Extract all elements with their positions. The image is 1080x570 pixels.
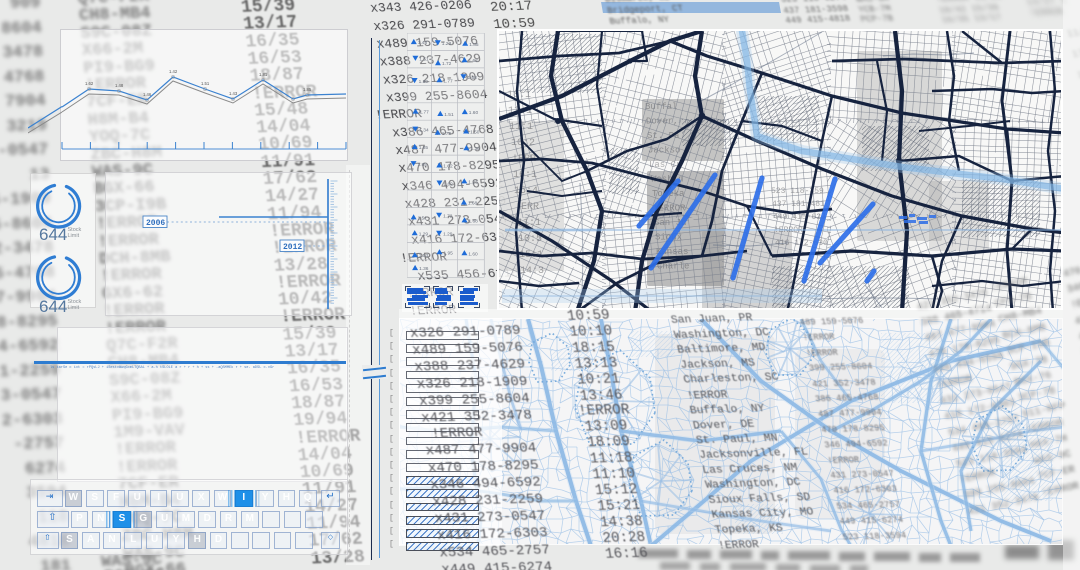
svg-text:1.46: 1.46 [143, 92, 152, 97]
svg-text:1.85: 1.85 [469, 42, 479, 48]
svg-text:1.85: 1.85 [303, 87, 312, 92]
svg-text:1.23: 1.23 [468, 179, 478, 185]
svg-text:1.36: 1.36 [419, 266, 429, 272]
svg-text:1.72: 1.72 [442, 61, 452, 67]
svg-text:Jackso: Jackso [648, 146, 680, 156]
svg-text:1.43: 1.43 [229, 91, 238, 96]
svg-text:1.81: 1.81 [259, 72, 268, 77]
svg-text:1.95: 1.95 [443, 250, 453, 256]
svg-text:1.34: 1.34 [419, 127, 429, 133]
svg-text:2006: 2006 [146, 219, 165, 228]
svg-text:1.29: 1.29 [443, 232, 453, 238]
svg-text:1.51: 1.51 [419, 57, 429, 63]
svg-text:1.68: 1.68 [467, 201, 477, 207]
svg-text:1.85: 1.85 [418, 145, 428, 151]
svg-text:1.51: 1.51 [201, 81, 210, 86]
svg-text:1.23: 1.23 [441, 41, 451, 47]
svg-text:2012: 2012 [283, 243, 302, 252]
svg-text:1.29: 1.29 [418, 231, 428, 237]
svg-text:1.62: 1.62 [85, 81, 94, 86]
svg-text:1.42: 1.42 [169, 69, 178, 74]
svg-text:1.68: 1.68 [467, 75, 477, 81]
svg-text:1.77: 1.77 [443, 78, 453, 84]
svg-text:1.62: 1.62 [443, 164, 453, 170]
svg-text:1.80: 1.80 [418, 79, 428, 85]
svg-text:1.68: 1.68 [468, 218, 478, 224]
svg-text:1.48: 1.48 [115, 83, 124, 88]
svg-text:1.77: 1.77 [419, 110, 429, 116]
svg-text:1.72: 1.72 [443, 214, 453, 220]
svg-text:1.60: 1.60 [468, 251, 478, 257]
svg-text:1.51: 1.51 [417, 215, 427, 221]
svg-text:1.72: 1.72 [441, 131, 451, 137]
svg-text:1.51: 1.51 [444, 112, 454, 118]
svg-text:1.50: 1.50 [470, 130, 480, 136]
svg-text:1.36: 1.36 [470, 146, 480, 152]
svg-text:1.60: 1.60 [468, 110, 478, 116]
svg-text:1.53: 1.53 [418, 253, 428, 259]
svg-text:1.48: 1.48 [417, 40, 427, 46]
svg-text:1.62: 1.62 [443, 181, 453, 187]
svg-text:1.62: 1.62 [468, 58, 478, 64]
svg-text:1.85: 1.85 [417, 162, 427, 168]
